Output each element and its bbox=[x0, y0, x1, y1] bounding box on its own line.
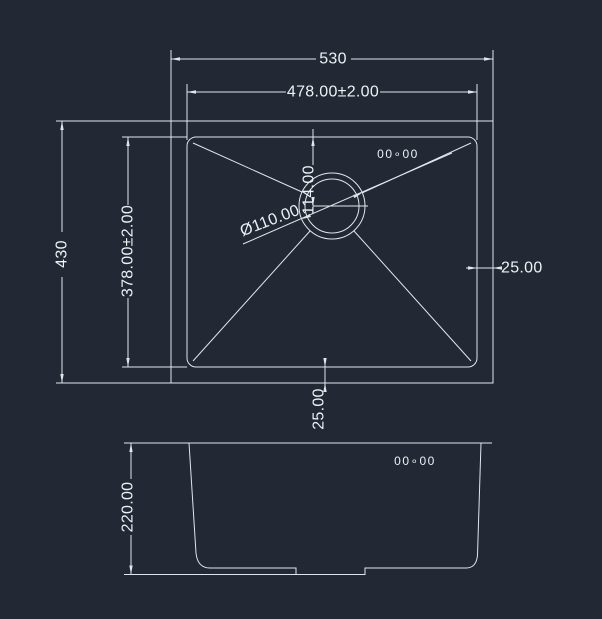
dim-drain-position-label: 114.00 bbox=[301, 165, 318, 215]
front-bowl-profile bbox=[189, 443, 481, 575]
outer-rim-outline bbox=[171, 121, 493, 383]
bowl-rim-outline bbox=[187, 137, 477, 367]
dim-drain-diameter-label: Ø110.00 bbox=[238, 202, 302, 240]
dim-right-offset-label: 25.00 bbox=[501, 260, 543, 277]
dim-bottom-offset: 25.00 bbox=[311, 358, 328, 430]
dim-outer-width-label: 530 bbox=[319, 51, 347, 68]
bowl-slope-lines bbox=[193, 143, 471, 361]
dim-inner-width: 478.00±2.00 bbox=[187, 84, 477, 141]
cad-canvas: 530 478.00±2.00 430 bbox=[0, 0, 602, 619]
sink-technical-drawing: 530 478.00±2.00 430 bbox=[0, 0, 602, 619]
dim-inner-height: 378.00±2.00 bbox=[120, 137, 188, 367]
dim-inner-height-label: 378.00±2.00 bbox=[120, 205, 137, 297]
dim-outer-height: 430 bbox=[54, 121, 172, 383]
surface-mark-top-view: 00∘00 bbox=[377, 147, 419, 161]
dim-bottom-offset-label: 25.00 bbox=[311, 388, 328, 430]
dim-outer-height-label: 430 bbox=[54, 240, 71, 268]
top-view: 530 478.00±2.00 430 bbox=[54, 50, 543, 430]
dim-inner-width-label: 478.00±2.00 bbox=[287, 84, 379, 101]
dim-drain-diameter: Ø110.00 bbox=[238, 153, 452, 244]
dim-depth-label: 220.00 bbox=[120, 482, 137, 533]
dim-drain-position: 114.00 bbox=[301, 129, 318, 215]
surface-mark-front-view: 00∘00 bbox=[394, 454, 436, 468]
dim-depth: 220.00 bbox=[120, 443, 297, 575]
front-view: 220.00 00∘00 bbox=[120, 443, 493, 575]
